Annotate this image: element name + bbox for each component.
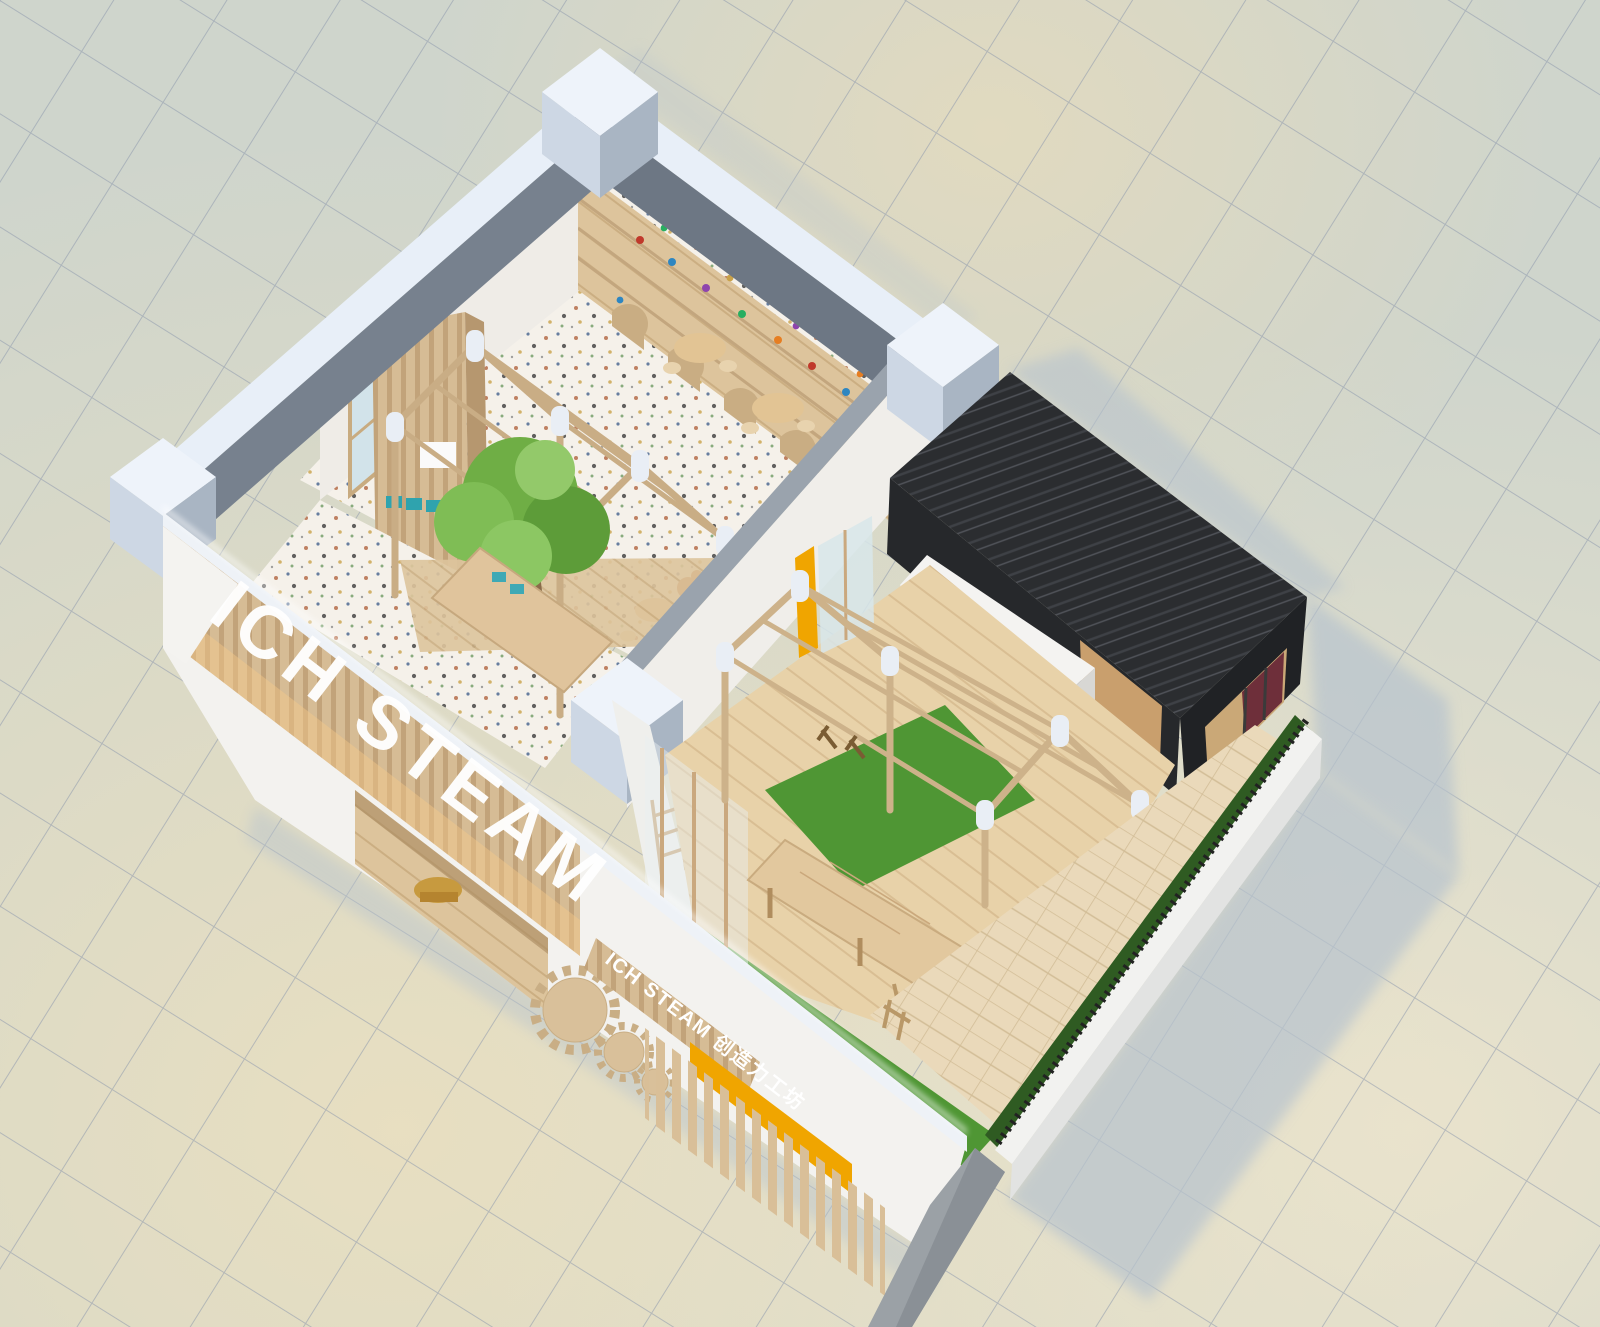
render-canvas: ICH STEAM ICH STEAM 创造力工坊 — [0, 0, 1600, 1327]
axonometric-scene: ICH STEAM ICH STEAM 创造力工坊 — [0, 0, 1600, 1327]
